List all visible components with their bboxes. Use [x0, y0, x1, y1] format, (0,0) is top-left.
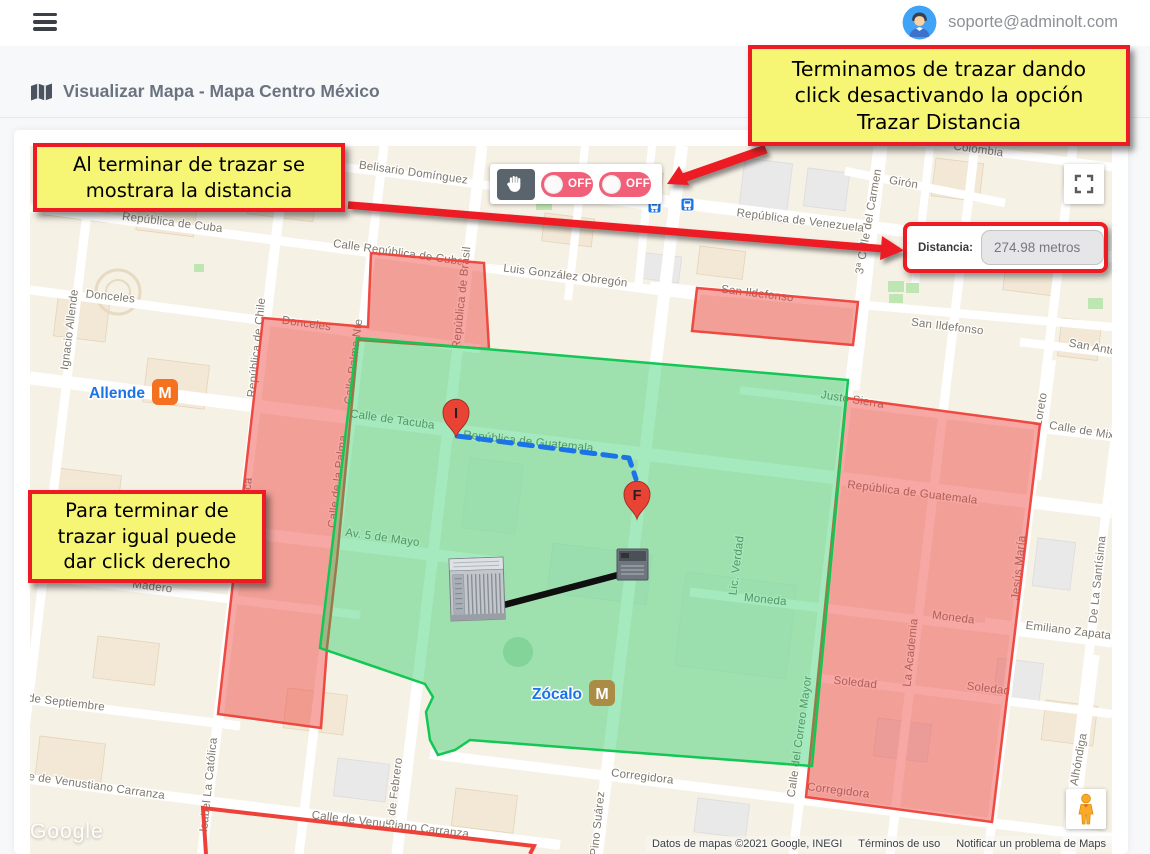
distance-value: 274.98 metros [994, 240, 1080, 255]
app-window: soporte@adminolt.com Visualizar Mapa - M… [0, 0, 1150, 854]
top-bar: soporte@adminolt.com [0, 0, 1150, 46]
fullscreen-icon [1074, 174, 1094, 194]
callout-right-click: Para terminar de trazar igual puede dar … [28, 490, 266, 583]
breadcrumb: Visualizar Mapa - Mapa Centro México [30, 81, 380, 102]
map-icon [30, 82, 54, 102]
toggle-knob [544, 175, 563, 194]
toggle-2-label: OFF [626, 178, 650, 190]
attribution-terms-link[interactable]: Términos de uso [858, 838, 940, 850]
svg-text:M: M [595, 686, 608, 703]
user-menu[interactable]: soporte@adminolt.com [902, 5, 1118, 40]
map-attribution: Datos de mapas ©2021 Google, INEGI Térmi… [646, 836, 1112, 852]
distance-input[interactable]: 274.98 metros [981, 230, 1104, 265]
svg-text:M: M [158, 385, 171, 402]
page-title: Visualizar Mapa - Mapa Centro México [63, 81, 380, 102]
attribution-report-link[interactable]: Notificar un problema de Maps [956, 838, 1106, 850]
toggle-knob [602, 175, 621, 194]
toggle-switch-1[interactable]: OFF [541, 172, 593, 197]
toggle-switch-2[interactable]: OFF [599, 172, 651, 197]
distance-label: Distancia: [918, 242, 973, 254]
pegman-icon [1075, 793, 1097, 825]
hamburger-menu-button[interactable] [33, 13, 57, 34]
distance-panel: Distancia: 274.98 metros [903, 222, 1108, 273]
attribution-data: Datos de mapas ©2021 Google, INEGI [652, 838, 842, 850]
hand-icon [506, 174, 526, 194]
onu-device-image [617, 549, 648, 580]
google-watermark[interactable]: Google [30, 820, 104, 844]
marker-end-label: F [633, 488, 642, 504]
user-email: soporte@adminolt.com [948, 13, 1118, 32]
olt-device-image [449, 557, 505, 621]
callout-finish-tracing: Terminamos de trazar dando click desacti… [748, 45, 1130, 146]
callout-distance-shown: Al terminar de trazar se mostrara la dis… [33, 143, 345, 212]
avatar [902, 5, 937, 40]
bus-stop-icon[interactable] [681, 198, 694, 211]
station-name-zocalo: Zócalo [532, 686, 582, 703]
hand-tool-button[interactable] [497, 169, 535, 200]
marker-start-label: I [454, 406, 458, 422]
map-tools-panel: OFF OFF [490, 164, 662, 204]
fullscreen-button[interactable] [1064, 164, 1104, 204]
station-name-allende: Allende [89, 385, 145, 402]
pegman-button[interactable] [1066, 789, 1106, 829]
toggle-1-label: OFF [568, 178, 592, 190]
